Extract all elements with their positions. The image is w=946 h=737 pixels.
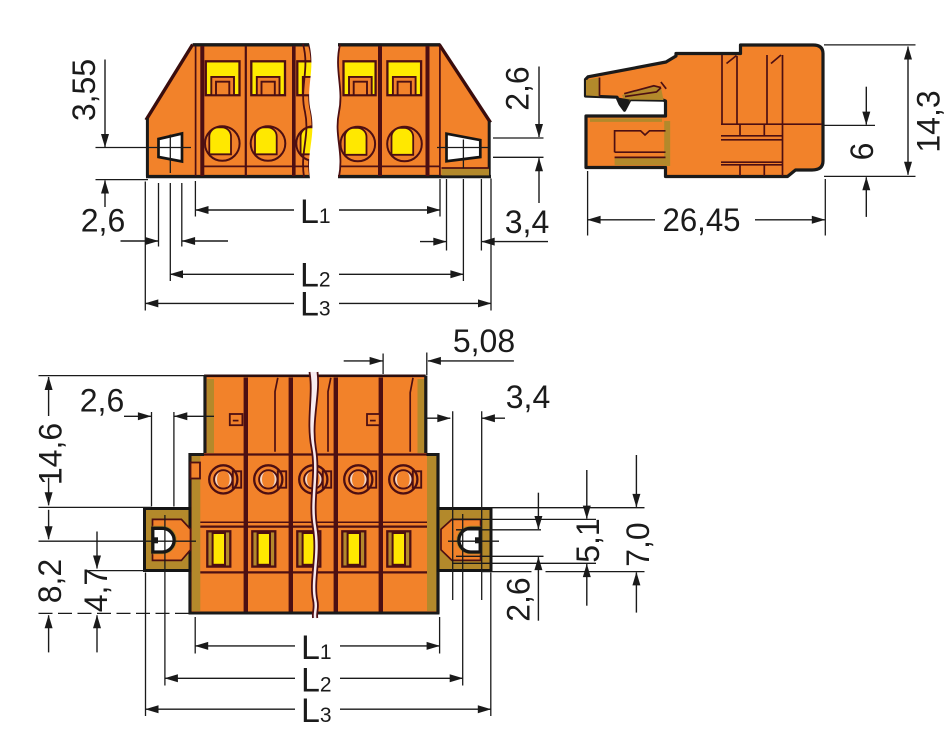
svg-text:2,6: 2,6: [80, 383, 124, 419]
svg-text:14,3: 14,3: [911, 90, 946, 152]
svg-text:5,1: 5,1: [570, 518, 606, 562]
svg-text:14,6: 14,6: [33, 423, 69, 485]
svg-text:3,4: 3,4: [505, 204, 549, 240]
svg-text:4,7: 4,7: [78, 568, 114, 612]
svg-text:6: 6: [844, 143, 880, 161]
svg-text:2,6: 2,6: [501, 577, 537, 621]
svg-text:2,6: 2,6: [500, 66, 536, 110]
svg-text:3,55: 3,55: [66, 59, 102, 121]
svg-text:5,08: 5,08: [453, 323, 515, 359]
svg-text:8,2: 8,2: [32, 559, 68, 603]
svg-text:26,45: 26,45: [663, 202, 741, 238]
svg-text:2,6: 2,6: [81, 203, 125, 239]
svg-text:3,4: 3,4: [506, 379, 550, 415]
svg-text:7,0: 7,0: [620, 522, 656, 566]
